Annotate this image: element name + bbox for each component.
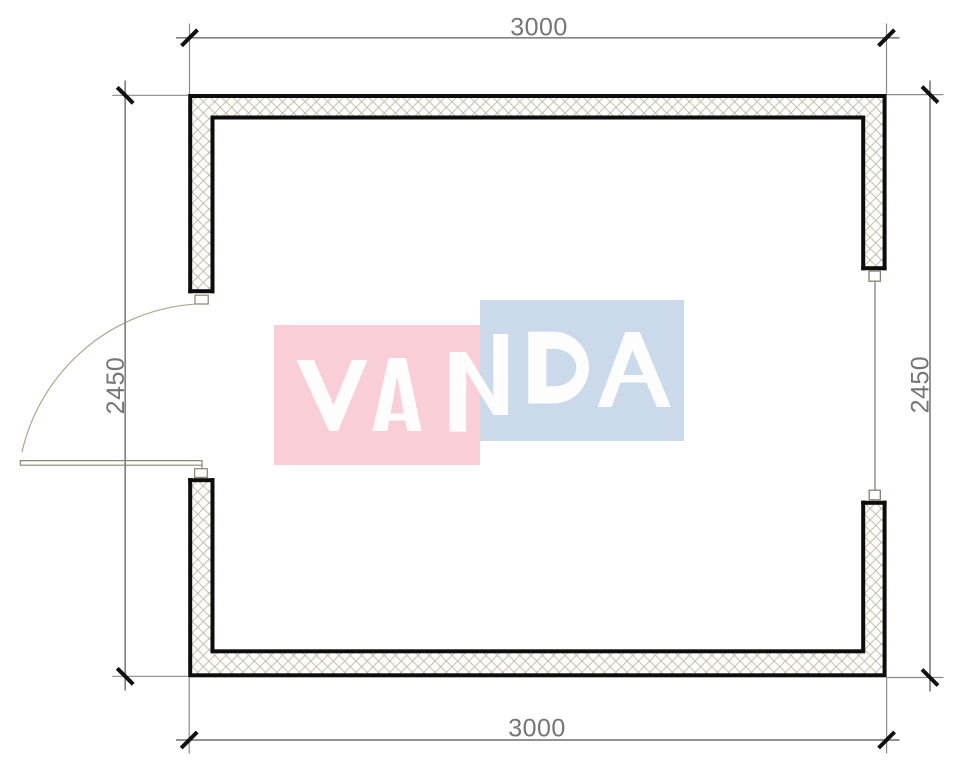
svg-text:3000: 3000 — [510, 14, 568, 42]
svg-text:2450: 2450 — [907, 356, 935, 414]
svg-text:3000: 3000 — [508, 715, 566, 743]
svg-text:2450: 2450 — [102, 357, 130, 415]
